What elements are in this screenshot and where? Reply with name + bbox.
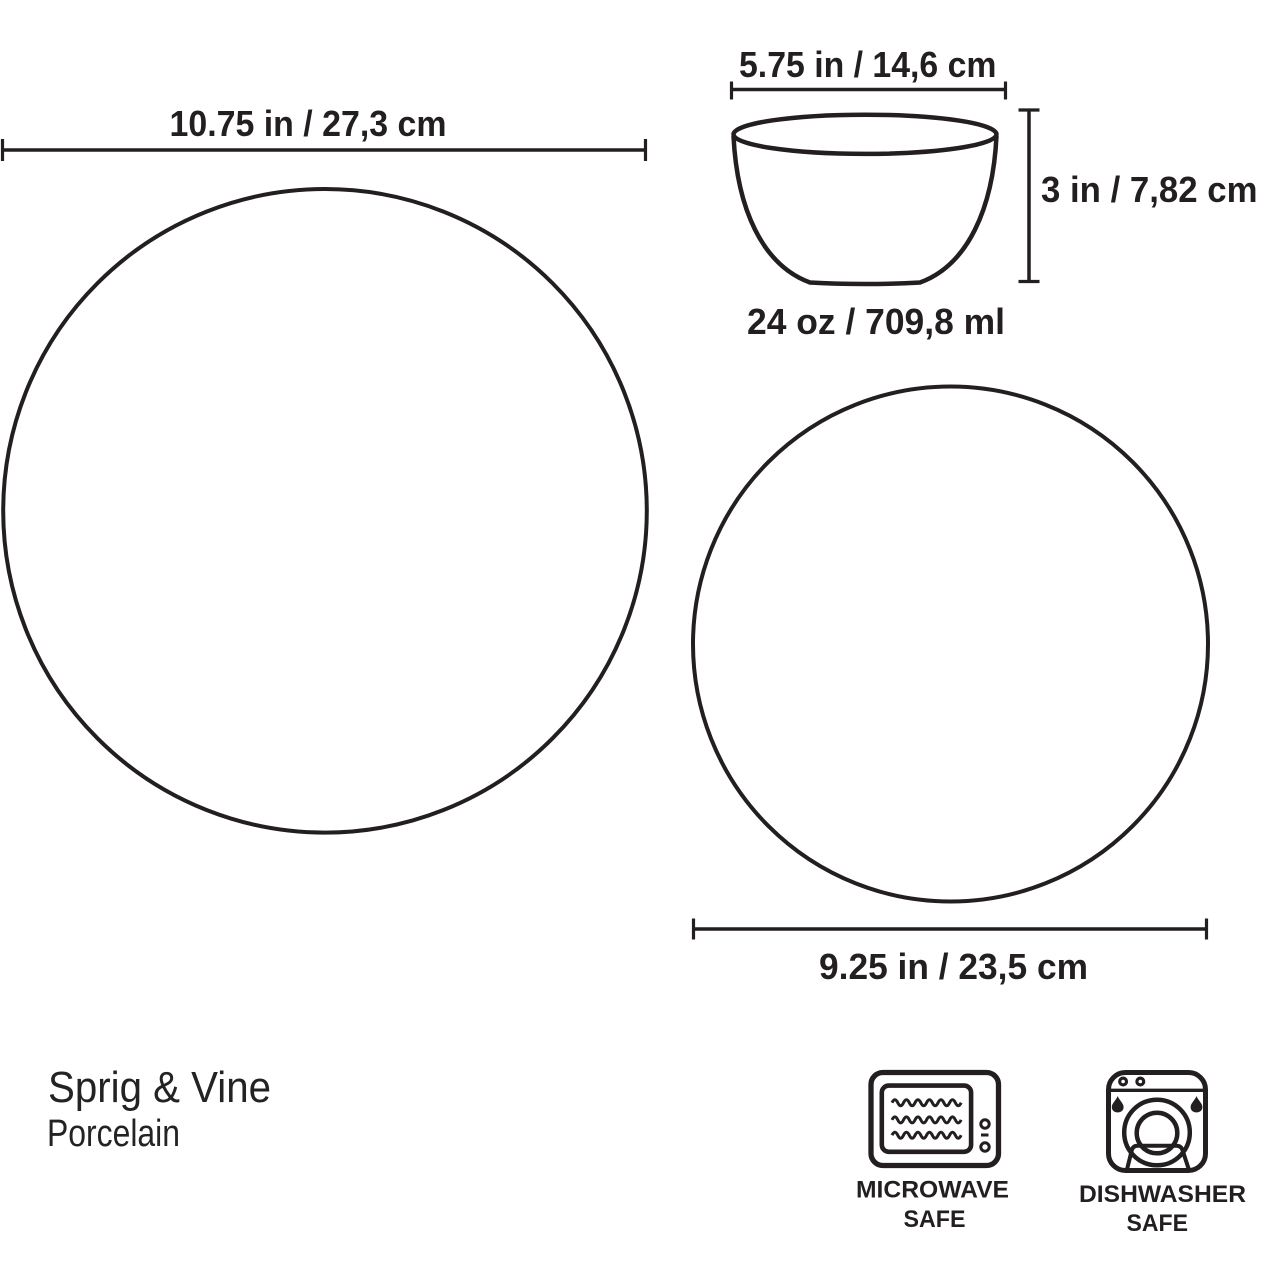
svg-text:DISHWASHER: DISHWASHER [1079, 1181, 1246, 1208]
svg-text:3 in / 7,82 cm: 3 in / 7,82 cm [1041, 169, 1258, 210]
svg-text:Porcelain: Porcelain [47, 1113, 180, 1155]
svg-text:24 oz / 709,8 ml: 24 oz / 709,8 ml [747, 301, 1005, 342]
svg-text:MICROWAVE: MICROWAVE [856, 1177, 1009, 1204]
svg-text:SAFE: SAFE [1127, 1210, 1189, 1237]
svg-text:10.75 in / 27,3 cm: 10.75 in / 27,3 cm [170, 103, 447, 144]
svg-text:5.75 in / 14,6 cm: 5.75 in / 14,6 cm [739, 44, 997, 85]
svg-text:SAFE: SAFE [904, 1206, 966, 1233]
svg-text:Sprig & Vine: Sprig & Vine [48, 1063, 271, 1112]
svg-text:9.25 in / 23,5 cm: 9.25 in / 23,5 cm [819, 946, 1088, 987]
